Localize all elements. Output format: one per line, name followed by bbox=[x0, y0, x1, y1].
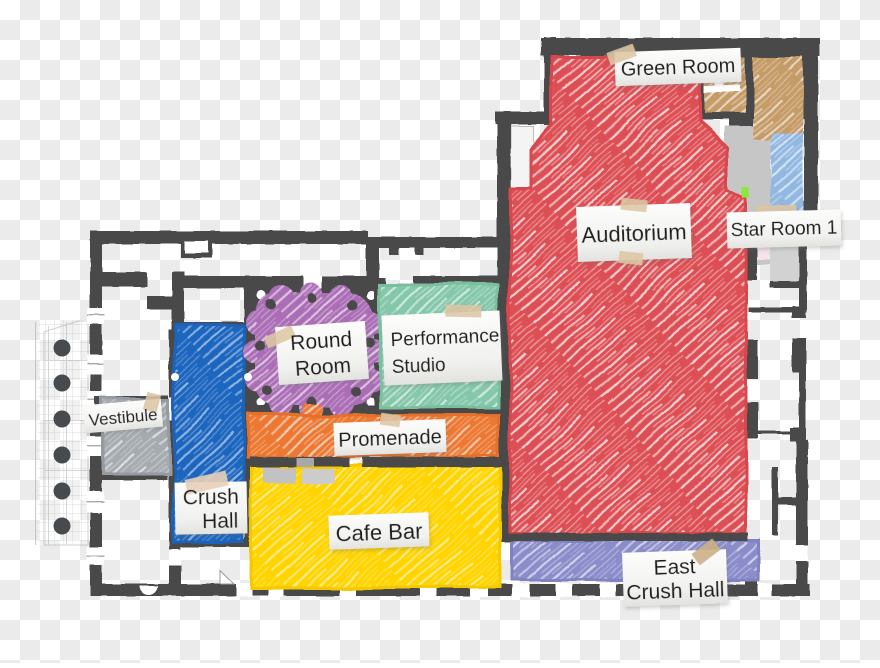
svg-text:Studio: Studio bbox=[391, 355, 446, 378]
svg-text:Green Room: Green Room bbox=[620, 55, 735, 81]
svg-text:Crush: Crush bbox=[183, 486, 239, 510]
svg-text:Star Room 1: Star Room 1 bbox=[730, 218, 837, 242]
svg-text:Room: Room bbox=[294, 354, 351, 381]
svg-text:Round: Round bbox=[290, 328, 353, 355]
svg-text:East: East bbox=[653, 555, 696, 579]
svg-text:Auditorium: Auditorium bbox=[581, 219, 687, 248]
svg-text:Crush Hall: Crush Hall bbox=[626, 578, 725, 604]
svg-text:Cafe Bar: Cafe Bar bbox=[335, 518, 423, 546]
svg-text:Promenade: Promenade bbox=[338, 426, 442, 452]
svg-text:Hall: Hall bbox=[202, 510, 239, 534]
